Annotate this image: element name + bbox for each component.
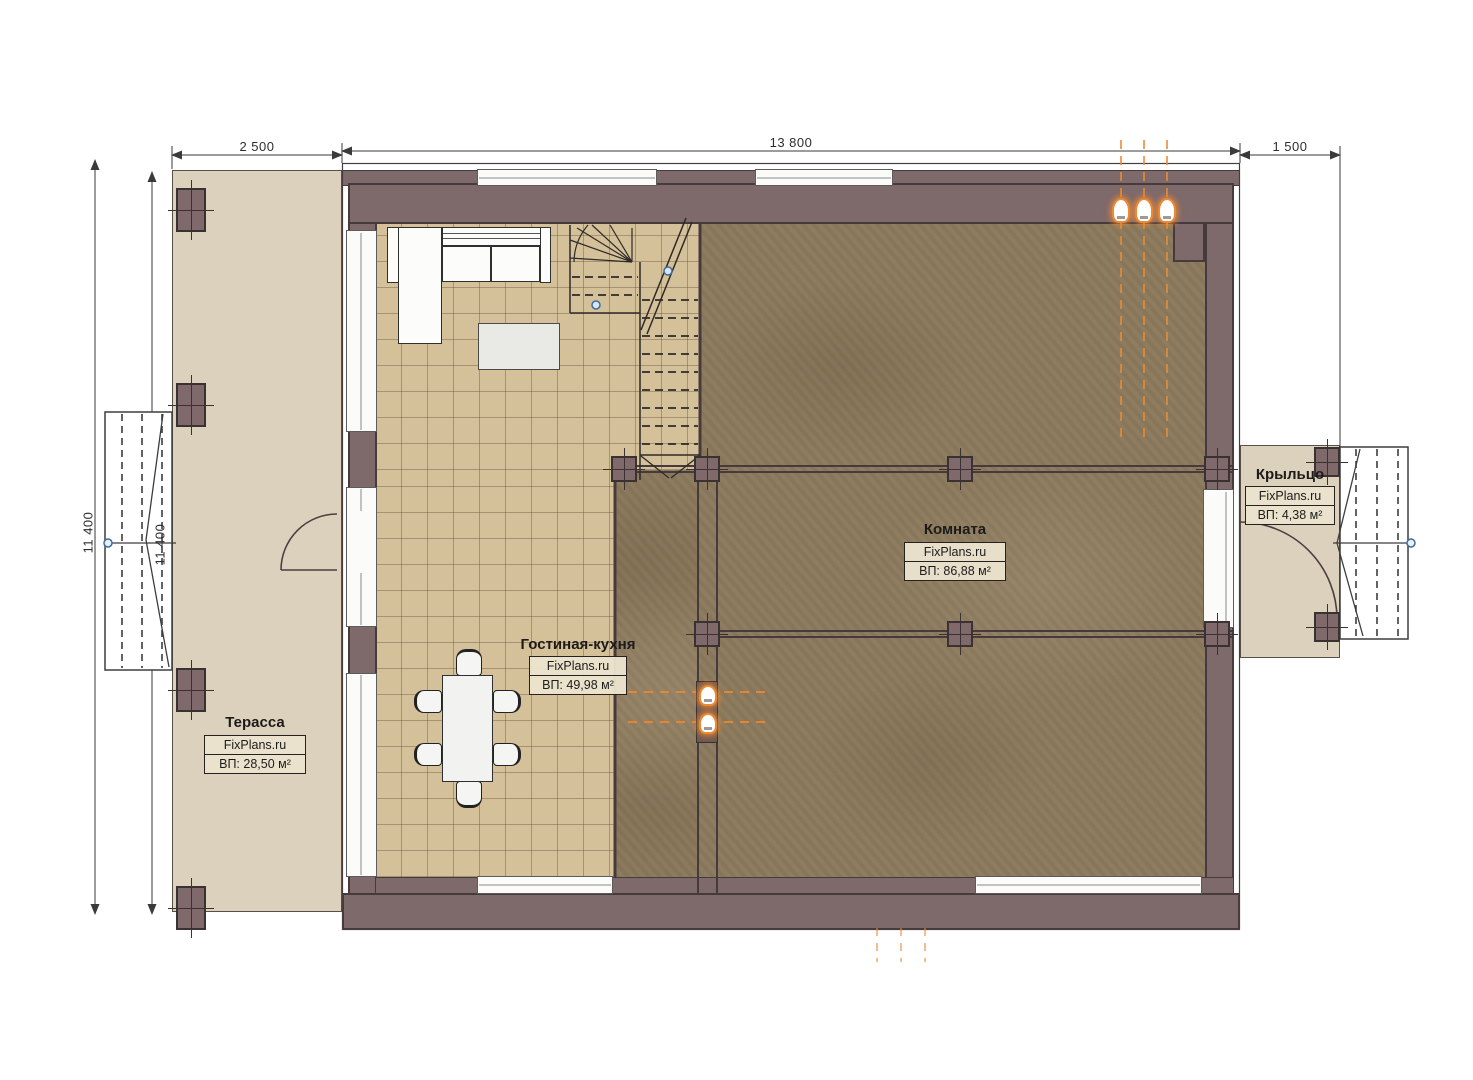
column [947, 456, 973, 482]
dimension-label-top-right: 1 500 [1240, 139, 1340, 154]
dimension-label-left-outer: 11 400 [81, 500, 96, 566]
corner-wall-block [1173, 222, 1205, 262]
heater-fixture-icon [699, 713, 717, 734]
top-window-2 [755, 169, 893, 186]
right-door-opening [1203, 489, 1234, 628]
left-window-door [346, 487, 377, 627]
chair [414, 743, 442, 766]
living-kitchen-label: Гостиная-кухня FixPlans.ru ВП: 49,98 м² [503, 636, 653, 695]
left-window-3 [346, 673, 377, 877]
porch-post [1314, 612, 1340, 642]
dining-table [442, 675, 493, 782]
column [611, 456, 637, 482]
chair [414, 690, 442, 713]
bottom-window-1 [477, 876, 613, 894]
room-label: Комната FixPlans.ru ВП: 86,88 м² [903, 521, 1007, 581]
porch-name: Крыльцо [1244, 466, 1336, 483]
sofa-seat [491, 246, 540, 282]
plumbing-fixture-icon [1112, 198, 1130, 223]
brand-watermark: FixPlans.ru [205, 736, 305, 754]
chair [456, 649, 482, 676]
sofa-back [442, 227, 541, 246]
dimension-label-top-middle: 13 800 [741, 135, 841, 150]
terrace-post [176, 188, 206, 232]
terrace-label: Терасса FixPlans.ru ВП: 28,50 м² [185, 714, 325, 774]
sofa-chaise [398, 227, 442, 344]
terrace-post [176, 383, 206, 427]
terrace-name: Терасса [185, 714, 325, 731]
porch-info-box: FixPlans.ru ВП: 4,38 м² [1245, 486, 1335, 525]
plumbing-fixture-icon [1158, 198, 1176, 223]
chair [493, 743, 521, 766]
left-window-1 [346, 230, 377, 432]
sofa-armrest-right [540, 227, 551, 283]
terrace-info-box: FixPlans.ru ВП: 28,50 м² [204, 735, 306, 774]
brand-watermark: FixPlans.ru [1246, 487, 1334, 505]
top-window-1 [477, 169, 657, 186]
porch-area: ВП: 4,38 м² [1246, 505, 1334, 524]
room-name: Комната [903, 521, 1007, 538]
top-wall [348, 183, 1234, 224]
room-area: ВП: 86,88 м² [905, 561, 1005, 580]
column [694, 621, 720, 647]
terrace-post [176, 886, 206, 930]
terrace-area: ВП: 28,50 м² [205, 754, 305, 773]
sofa-seat [442, 246, 491, 282]
terrace-post [176, 668, 206, 712]
floor-plan-canvas: 2 500 13 800 1 500 11 400 11 400 Терасса… [0, 0, 1473, 1080]
brand-watermark: FixPlans.ru [530, 657, 626, 675]
column [947, 621, 973, 647]
column [1204, 456, 1230, 482]
living-kitchen-info-box: FixPlans.ru ВП: 49,98 м² [529, 656, 627, 695]
plumbing-fixture-icon [1135, 198, 1153, 223]
dimension-label-left-inner: 11 400 [153, 512, 168, 578]
living-kitchen-name: Гостиная-кухня [503, 636, 653, 653]
bottom-wall [342, 893, 1240, 930]
living-kitchen-area: ВП: 49,98 м² [530, 675, 626, 694]
porch-steps [1333, 447, 1415, 639]
brand-watermark: FixPlans.ru [905, 543, 1005, 561]
column [694, 456, 720, 482]
dimension-label-top-left: 2 500 [207, 139, 307, 154]
terrace-floor [172, 170, 342, 912]
coffee-table [478, 323, 560, 370]
porch-label: Крыльцо FixPlans.ru ВП: 4,38 м² [1244, 466, 1336, 525]
room-info-box: FixPlans.ru ВП: 86,88 м² [904, 542, 1006, 581]
bottom-window-2 [975, 876, 1202, 894]
heater-fixture-icon [699, 685, 717, 706]
column [1204, 621, 1230, 647]
chair [456, 781, 482, 808]
